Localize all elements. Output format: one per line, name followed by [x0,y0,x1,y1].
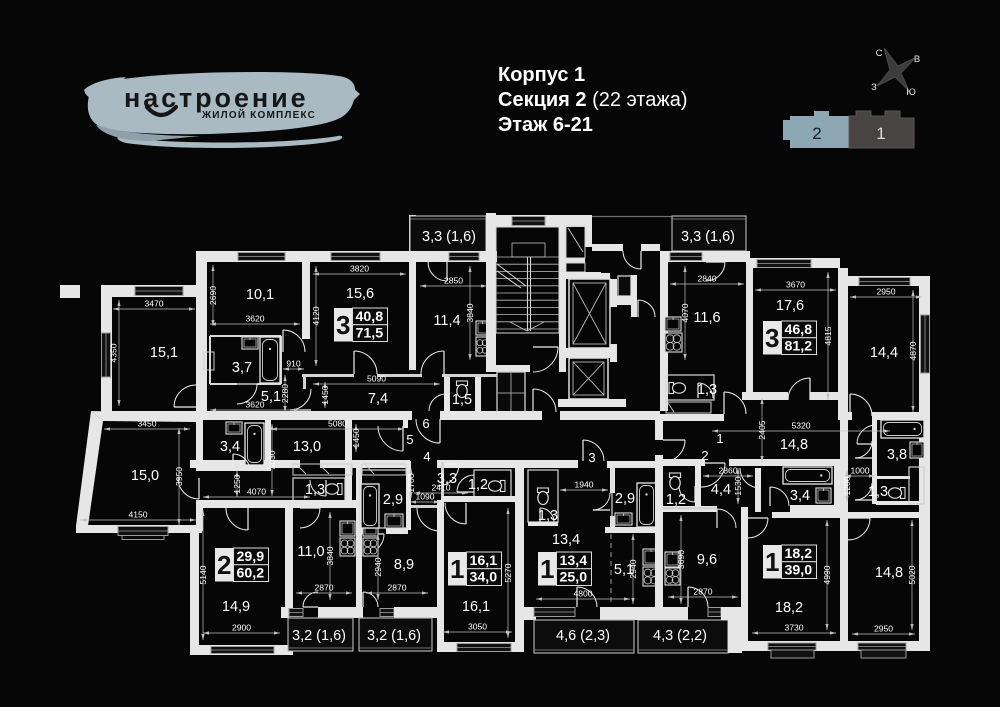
svg-text:1200: 1200 [842,476,852,495]
svg-text:15,6: 15,6 [346,286,374,302]
svg-text:1: 1 [540,554,554,584]
svg-text:5270: 5270 [503,563,513,582]
svg-text:39,0: 39,0 [785,563,813,579]
svg-text:2860: 2860 [718,466,737,476]
svg-text:4120: 4120 [311,306,321,325]
svg-text:5140: 5140 [198,565,208,584]
svg-text:14,9: 14,9 [222,599,250,615]
svg-text:1,2: 1,2 [468,477,488,493]
svg-text:1,3: 1,3 [305,482,325,498]
svg-text:14,4: 14,4 [870,345,898,361]
svg-text:3670: 3670 [786,280,805,290]
svg-text:Этаж 6-21: Этаж 6-21 [498,114,593,136]
svg-text:1: 1 [450,554,464,584]
svg-text:11,4: 11,4 [433,313,460,329]
svg-text:Ю: Ю [906,87,916,98]
svg-text:1: 1 [876,124,885,143]
svg-text:3950: 3950 [174,467,184,486]
svg-text:Секция 2 (22 этажа): Секция 2 (22 этажа) [498,89,688,111]
svg-text:15,0: 15,0 [131,468,159,484]
svg-text:40,8: 40,8 [356,309,384,325]
svg-text:2,9: 2,9 [615,491,635,507]
svg-text:13,4: 13,4 [560,553,588,569]
svg-text:16,1: 16,1 [462,599,490,615]
svg-text:3840: 3840 [465,303,475,322]
svg-text:2690: 2690 [208,286,218,305]
svg-text:910: 910 [286,359,301,369]
svg-text:5090: 5090 [367,374,386,384]
svg-text:1090: 1090 [415,492,434,502]
svg-text:1,5: 1,5 [452,392,472,408]
svg-text:1,3: 1,3 [538,508,558,524]
svg-text:3620: 3620 [245,314,264,324]
svg-text:5,1: 5,1 [261,389,281,405]
svg-text:1,3: 1,3 [868,484,888,500]
svg-text:2870: 2870 [387,583,406,593]
svg-text:6: 6 [422,416,429,431]
svg-text:1700: 1700 [406,473,416,492]
svg-text:3,2 (1,6): 3,2 (1,6) [367,628,421,644]
svg-text:11,0: 11,0 [297,544,324,560]
svg-text:3,3: 3,3 [437,471,457,487]
svg-text:14,8: 14,8 [780,437,808,453]
svg-text:4815: 4815 [823,326,833,345]
svg-text:С: С [876,48,883,59]
svg-text:1,2: 1,2 [666,492,686,508]
svg-text:2870: 2870 [314,583,333,593]
svg-text:2950: 2950 [874,624,893,634]
svg-text:4800: 4800 [573,589,592,599]
svg-text:5,1: 5,1 [614,562,634,578]
svg-text:17,6: 17,6 [776,298,804,314]
svg-text:2,9: 2,9 [383,492,403,508]
svg-text:3,8: 3,8 [887,447,907,463]
svg-text:2900: 2900 [232,623,251,633]
svg-text:71,5: 71,5 [356,326,384,342]
svg-text:3470: 3470 [144,299,163,309]
svg-text:ЖИЛОЙ КОМПЛЕКС: ЖИЛОЙ КОМПЛЕКС [201,108,316,121]
svg-text:3,3 (1,6): 3,3 (1,6) [422,229,476,245]
svg-text:46,8: 46,8 [785,322,813,338]
svg-text:1530: 1530 [733,476,743,495]
svg-text:4870: 4870 [908,341,918,360]
svg-text:16,1: 16,1 [470,553,498,569]
svg-text:4,3 (2,2): 4,3 (2,2) [653,628,707,644]
svg-text:13,0: 13,0 [293,439,321,455]
svg-text:3820: 3820 [350,264,369,274]
svg-text:3050: 3050 [468,622,487,632]
svg-text:4990: 4990 [822,565,832,584]
svg-text:13,4: 13,4 [552,532,580,548]
svg-text:3,3 (1,6): 3,3 (1,6) [681,229,735,245]
svg-text:1: 1 [716,431,723,446]
svg-text:2950: 2950 [876,287,895,297]
svg-text:25,0: 25,0 [560,570,588,586]
svg-text:3,2 (1,6): 3,2 (1,6) [292,628,346,644]
svg-text:3: 3 [765,323,779,353]
svg-text:81,2: 81,2 [785,339,813,355]
svg-text:5080: 5080 [328,419,347,429]
svg-text:1: 1 [765,547,779,577]
svg-text:18,2: 18,2 [785,546,813,562]
svg-text:2870: 2870 [693,587,712,597]
svg-text:3: 3 [588,450,595,465]
svg-text:2940: 2940 [373,557,383,576]
svg-text:18,2: 18,2 [775,600,803,616]
svg-text:1450: 1450 [351,428,361,447]
svg-text:29,9: 29,9 [237,549,265,565]
svg-text:2: 2 [217,550,231,580]
svg-text:14,8: 14,8 [875,565,903,581]
svg-text:10,1: 10,1 [246,287,274,303]
svg-text:5: 5 [406,432,413,447]
svg-text:4150: 4150 [128,510,147,520]
svg-text:4,4: 4,4 [711,482,731,498]
svg-text:4070: 4070 [680,303,690,322]
svg-text:4070: 4070 [247,487,266,497]
svg-text:7,4: 7,4 [368,391,388,407]
svg-text:3730: 3730 [784,623,803,633]
svg-text:34,0: 34,0 [470,570,498,586]
svg-text:4,6 (2,3): 4,6 (2,3) [556,628,610,644]
svg-text:60,2: 60,2 [237,566,265,582]
svg-text:2840: 2840 [697,274,716,284]
svg-text:2850: 2850 [444,276,463,286]
svg-text:3840: 3840 [325,546,335,565]
svg-text:настроение: настроение [124,83,309,113]
svg-text:3: 3 [336,310,350,340]
svg-text:1250: 1250 [232,474,242,493]
svg-text:3450: 3450 [137,419,156,429]
svg-text:3,4: 3,4 [790,488,810,504]
svg-text:8,9: 8,9 [394,557,414,573]
svg-text:5320: 5320 [791,421,810,431]
svg-text:В: В [914,54,920,65]
svg-text:3,4: 3,4 [220,439,240,455]
svg-text:15,1: 15,1 [150,345,178,361]
svg-text:1450: 1450 [320,385,330,404]
svg-text:11,6: 11,6 [693,310,720,326]
svg-text:3,7: 3,7 [232,360,252,376]
svg-text:3690: 3690 [676,550,686,569]
svg-text:З: З [871,82,877,93]
svg-text:4: 4 [423,449,430,464]
svg-text:3030: 3030 [267,450,277,469]
svg-text:2: 2 [812,124,821,143]
svg-text:2280: 2280 [280,384,290,403]
svg-text:Корпус 1: Корпус 1 [498,64,585,86]
svg-text:9,6: 9,6 [697,552,717,568]
svg-text:1,3: 1,3 [697,382,717,398]
svg-text:5020: 5020 [907,565,917,584]
svg-text:1940: 1940 [574,480,593,490]
svg-text:1000: 1000 [850,466,869,476]
svg-text:2: 2 [701,448,708,463]
svg-text:4350: 4350 [109,343,119,362]
svg-text:2405: 2405 [757,420,767,439]
